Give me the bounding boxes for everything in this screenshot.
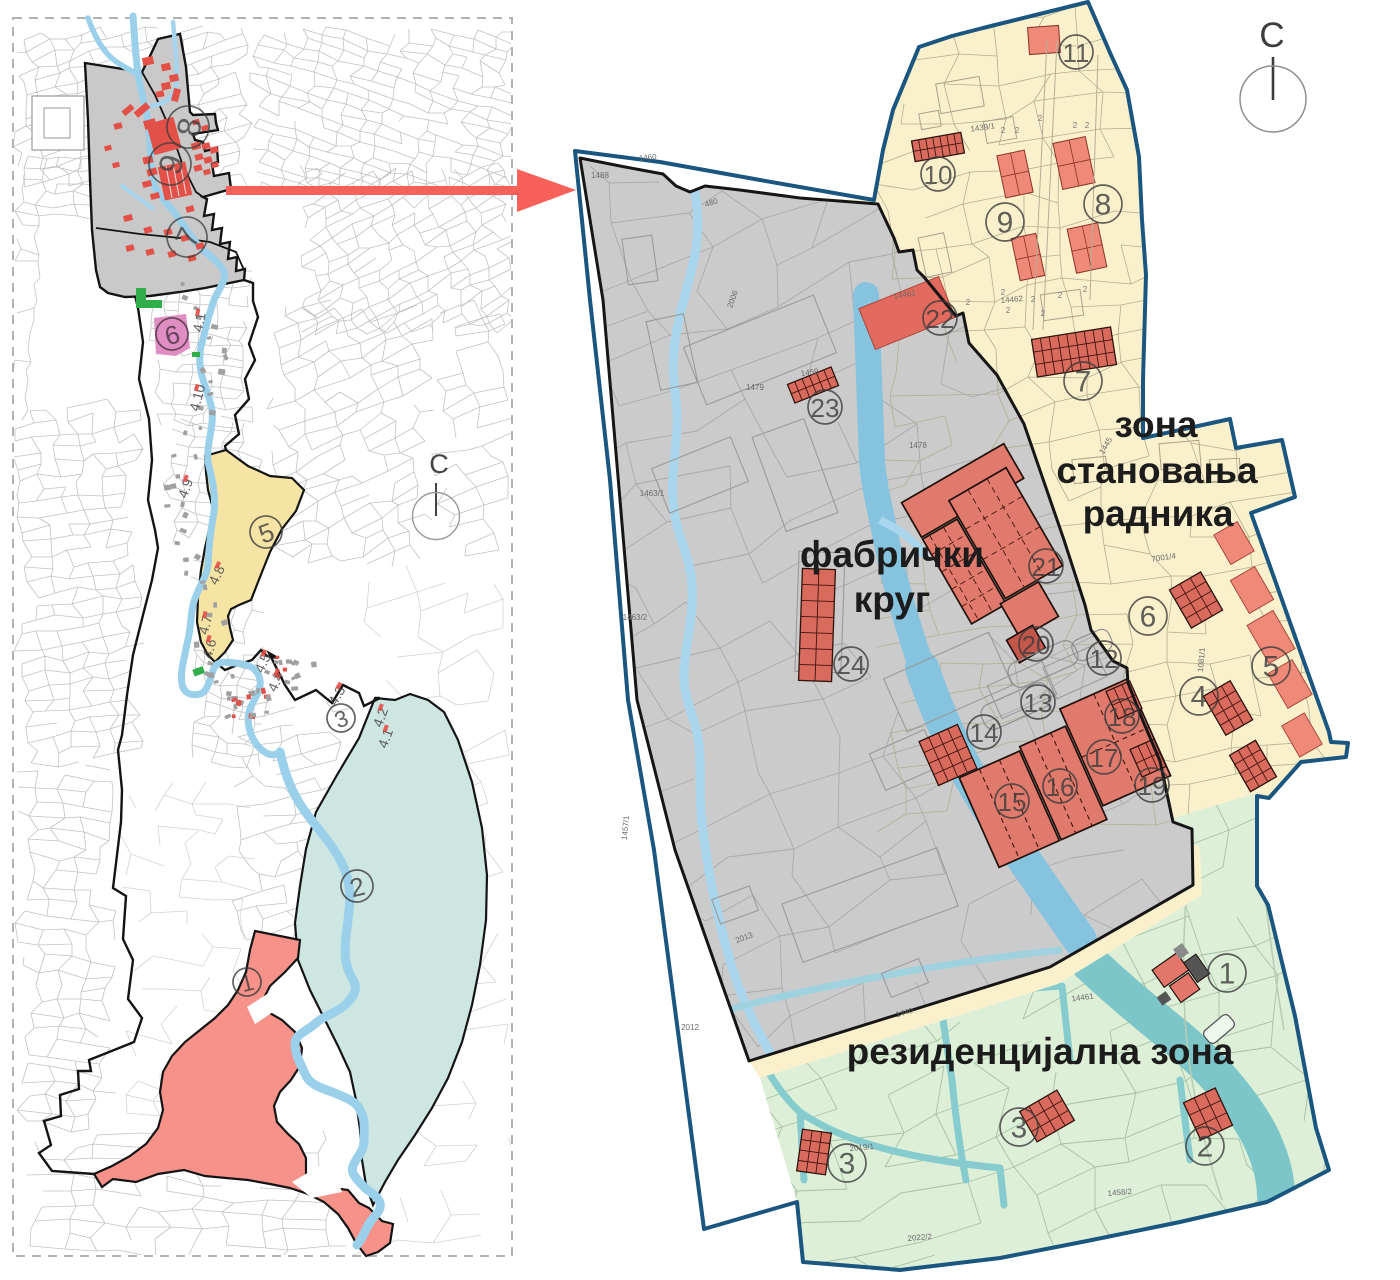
svg-text:7: 7 xyxy=(1075,366,1092,399)
svg-text:16: 16 xyxy=(1046,772,1075,802)
svg-text:радника: радника xyxy=(1083,493,1234,534)
svg-text:круг: круг xyxy=(854,579,931,620)
svg-text:2: 2 xyxy=(1015,126,1020,135)
svg-text:2: 2 xyxy=(1083,285,1088,294)
svg-text:4: 4 xyxy=(1191,681,1208,714)
svg-text:фабрички: фабрички xyxy=(800,534,984,575)
svg-text:3: 3 xyxy=(1011,1112,1028,1145)
svg-text:15: 15 xyxy=(998,787,1027,817)
svg-text:2: 2 xyxy=(1073,121,1078,130)
svg-text:12: 12 xyxy=(1090,644,1119,674)
svg-text:22: 22 xyxy=(926,304,955,334)
svg-text:2: 2 xyxy=(1197,1131,1214,1164)
svg-text:2: 2 xyxy=(1041,309,1046,318)
svg-text:2: 2 xyxy=(1031,295,1036,304)
svg-text:18: 18 xyxy=(1108,702,1137,732)
svg-text:резиденцијална зона: резиденцијална зона xyxy=(847,1031,1234,1072)
svg-text:2: 2 xyxy=(1058,291,1063,300)
svg-text:11: 11 xyxy=(1063,38,1090,68)
svg-text:2: 2 xyxy=(1038,114,1043,123)
svg-text:21: 21 xyxy=(1032,552,1061,582)
svg-text:становања: становања xyxy=(1056,450,1258,491)
svg-text:14: 14 xyxy=(970,718,999,748)
svg-text:2: 2 xyxy=(966,298,971,307)
svg-text:24: 24 xyxy=(837,650,866,680)
svg-text:1: 1 xyxy=(1219,958,1236,991)
svg-text:10: 10 xyxy=(924,160,953,190)
svg-text:1479: 1479 xyxy=(746,383,764,392)
svg-text:17: 17 xyxy=(1090,743,1119,773)
svg-text:C: C xyxy=(429,449,449,479)
svg-text:13: 13 xyxy=(1024,688,1053,718)
svg-text:8: 8 xyxy=(1095,189,1112,222)
svg-text:2: 2 xyxy=(1001,126,1006,135)
svg-text:1488: 1488 xyxy=(591,171,609,180)
svg-text:2012: 2012 xyxy=(681,1023,699,1032)
svg-text:С: С xyxy=(1259,16,1284,55)
svg-text:19: 19 xyxy=(1138,771,1167,801)
svg-text:9: 9 xyxy=(997,207,1014,240)
svg-text:5: 5 xyxy=(1263,651,1280,684)
svg-text:1463/1: 1463/1 xyxy=(640,489,665,498)
svg-text:1478: 1478 xyxy=(909,441,927,450)
svg-text:2: 2 xyxy=(1006,306,1011,315)
svg-text:2: 2 xyxy=(1085,121,1090,130)
svg-text:6: 6 xyxy=(1140,601,1157,634)
svg-text:зона: зона xyxy=(1115,404,1198,445)
svg-text:1463/2: 1463/2 xyxy=(623,613,648,622)
svg-text:1460: 1460 xyxy=(639,152,658,163)
svg-text:20: 20 xyxy=(1022,630,1051,660)
svg-text:23: 23 xyxy=(811,393,840,423)
